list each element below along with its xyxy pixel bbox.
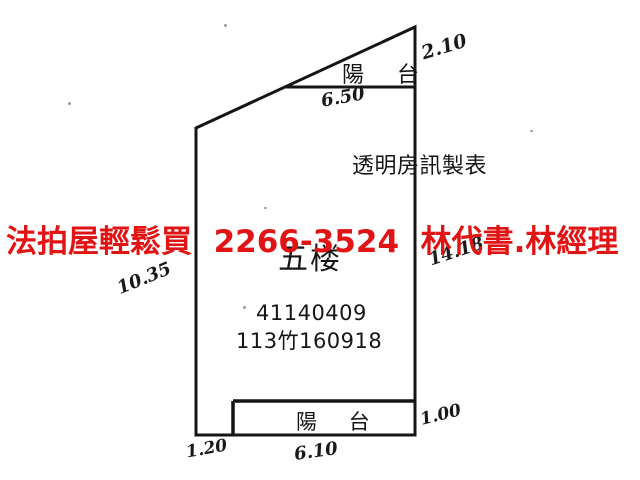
bottom-balcony-label: 陽 台 (296, 406, 371, 436)
ad-overlay-text: 法拍屋輕鬆買 2266-3524 林代書.林經理 (6, 216, 640, 261)
floorplan-scan-page: 陽 台 透明房訊製表 五楼 41140409 113竹160918 陽 台 2.… (0, 0, 640, 480)
case-number-line1: 41140409 (256, 301, 367, 325)
maker-label: 透明房訊製表 (352, 148, 487, 180)
case-number-line2: 113竹160918 (236, 325, 382, 355)
